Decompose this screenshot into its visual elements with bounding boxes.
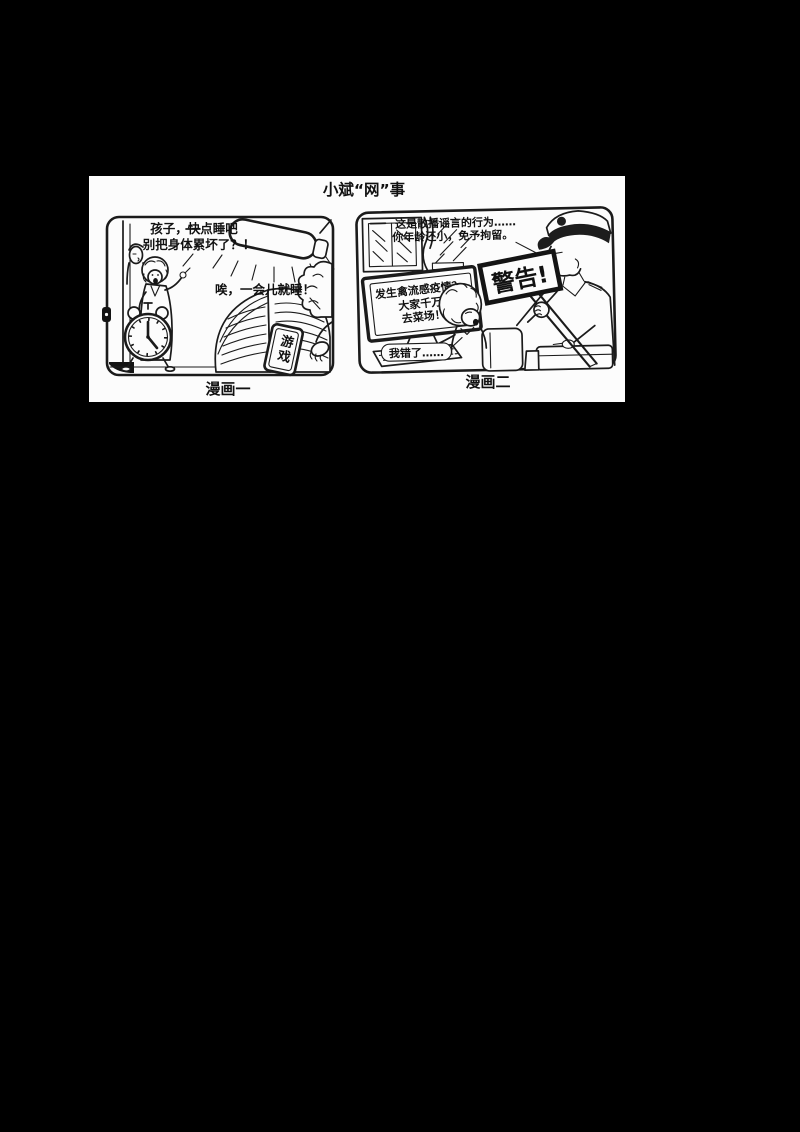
scanned-page: 小斌“网”事 <box>0 0 800 1132</box>
comic-panel-1: 游戏 孩子，快点睡吧 别把身体累坏了？！ 唉，一会儿就睡！ <box>102 217 334 376</box>
comic-title: 小斌“网”事 <box>323 180 406 199</box>
alarm-clock <box>122 303 175 371</box>
bench <box>524 345 612 370</box>
caption-comic-1: 漫画一 <box>205 380 250 398</box>
speech-pointer <box>183 254 193 266</box>
officer-cap <box>537 210 611 250</box>
mother-speech-line-2: 别把身体累坏了？！ <box>142 237 256 252</box>
comic-artwork: 小斌“网”事 <box>89 176 625 402</box>
boy-reply-text: 唉，一会儿就睡！ <box>215 282 315 297</box>
boy-apology-text: 我错了…… <box>389 345 444 360</box>
comic-worksheet: 小斌“网”事 <box>89 176 625 402</box>
chair <box>482 328 523 371</box>
caption-comic-2: 漫画二 <box>465 373 510 391</box>
officer-speech-pointer <box>516 242 536 253</box>
comic-panel-2: 发生禽流感疫情？ 大家千万不要 去菜场！ <box>356 207 616 374</box>
epaulette <box>588 281 602 290</box>
officer-speech-line-2: 你年龄还小，免予拘留。 <box>391 227 513 244</box>
cap-visor <box>537 237 555 250</box>
mother-speech-line-1: 孩子，快点睡吧 <box>150 221 238 236</box>
